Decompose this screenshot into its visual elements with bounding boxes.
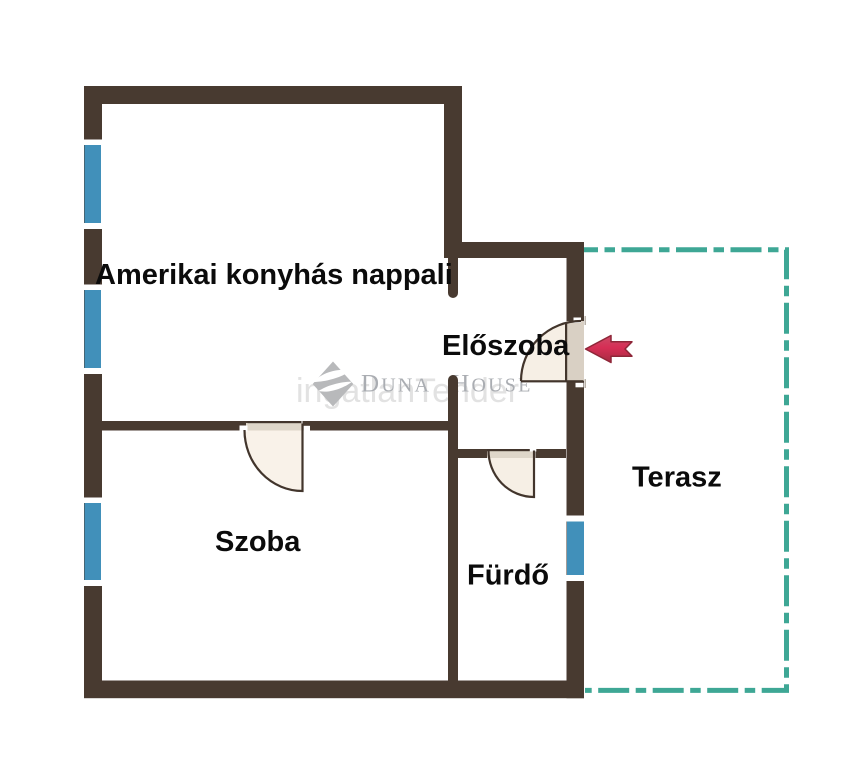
svg-text:Előszoba: Előszoba — [442, 330, 570, 362]
svg-text:Amerikai konyhás nappali: Amerikai konyhás nappali — [95, 259, 453, 291]
svg-text:Szoba: Szoba — [215, 526, 301, 558]
svg-text:Terasz: Terasz — [632, 462, 722, 494]
svg-text:Fürdő: Fürdő — [467, 560, 549, 592]
